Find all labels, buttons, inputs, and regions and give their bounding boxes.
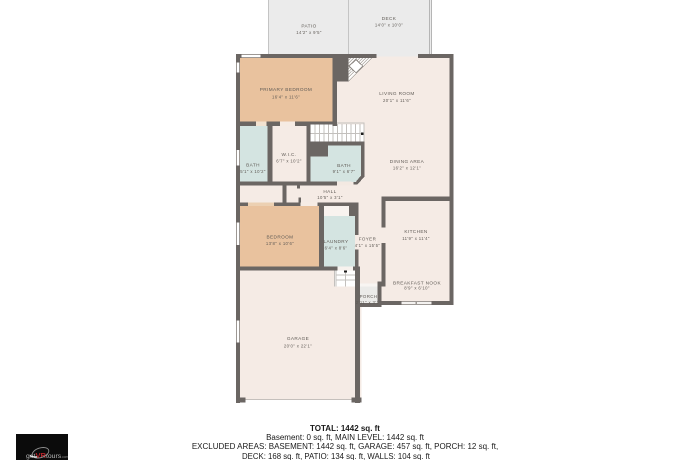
svg-text:6'7" x 10'2": 6'7" x 10'2" [276,158,302,163]
svg-text:2'11" x 3'1": 2'11" x 3'1" [356,300,381,305]
svg-text:PRIMARY BEDROOM: PRIMARY BEDROOM [260,87,312,92]
svg-text:KITCHEN: KITCHEN [404,229,427,234]
svg-text:14'0" x 10'0": 14'0" x 10'0" [375,23,403,28]
svg-text:LIVING ROOM: LIVING ROOM [379,91,414,96]
svg-text:8'9" x 6'10": 8'9" x 6'10" [404,285,430,290]
svg-text:BATH: BATH [246,163,260,168]
svg-text:16'4" x 11'6": 16'4" x 11'6" [272,95,300,100]
svg-text:LAUNDRY: LAUNDRY [324,239,349,244]
svg-text:20'1" x 11'6": 20'1" x 11'6" [383,98,411,103]
svg-text:FOYER: FOYER [359,236,377,241]
svg-text:10'5" x 3'1": 10'5" x 3'1" [317,195,343,200]
svg-text:BEDROOM: BEDROOM [267,234,294,239]
svg-text:4'1" x 15'5": 4'1" x 15'5" [355,243,381,248]
svg-text:PATIO: PATIO [301,24,316,29]
svg-text:PORCH: PORCH [360,294,378,299]
svg-text:20'0" x 22'1": 20'0" x 22'1" [284,344,312,349]
svg-text:HALL: HALL [323,189,336,194]
svg-text:DINING AREA: DINING AREA [390,159,425,164]
svg-text:6'4" x 8'6": 6'4" x 8'6" [325,246,348,251]
svg-text:9'1" x 6'7": 9'1" x 6'7" [333,169,356,174]
svg-text:DECK: DECK [382,16,397,21]
svg-text:13'8" x 10'6": 13'8" x 10'6" [266,241,294,246]
svg-text:W.I.C.: W.I.C. [281,152,296,157]
svg-text:16'2" x 12'1": 16'2" x 12'1" [393,166,421,171]
svg-text:BATH: BATH [337,163,351,168]
svg-text:14'2" x 9'5": 14'2" x 9'5" [296,30,322,35]
svg-text:5'1" x 10'2": 5'1" x 10'2" [240,169,266,174]
svg-text:11'9" x 11'4": 11'9" x 11'4" [402,236,430,241]
svg-text:GARAGE: GARAGE [287,336,309,341]
